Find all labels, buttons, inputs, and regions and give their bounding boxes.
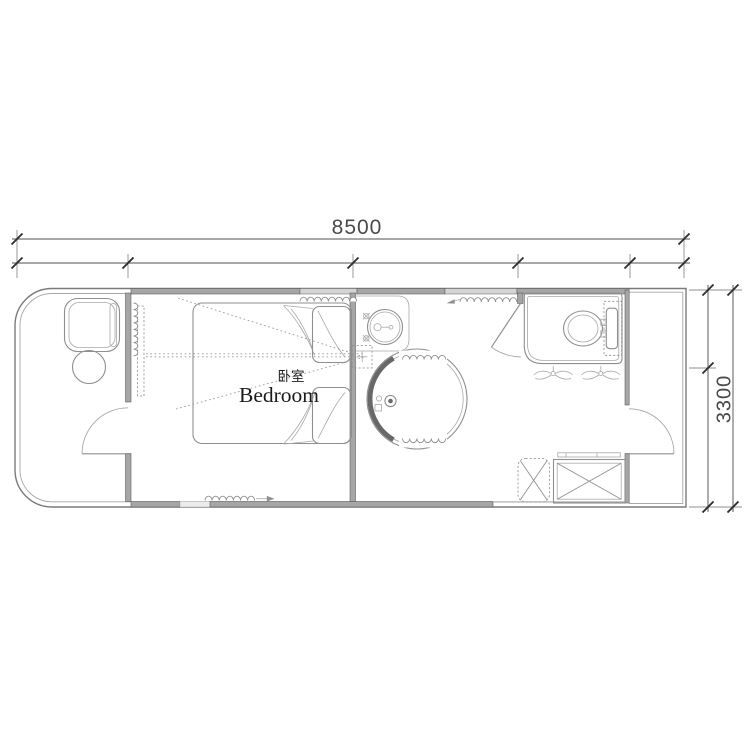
tap-handle-cold (363, 335, 370, 342)
overall-width-dimension-label: 8500 (332, 216, 383, 239)
window-bedroom-top (300, 289, 357, 295)
window-bath-top (445, 289, 517, 295)
dimension-top: 8500 (12, 216, 691, 278)
tap-handle-hot (363, 313, 370, 320)
opening-bottom (180, 502, 210, 508)
floor-plan-canvas: 8500 3300 (0, 0, 750, 750)
wall-toilet-stub (518, 293, 524, 304)
overall-depth-dimension-label: 3300 (714, 375, 736, 424)
room-label-zh: 卧室 (278, 368, 305, 384)
room-label-en: Bedroom (239, 383, 319, 407)
floor-plan-drawing: 8500 3300 (0, 0, 750, 750)
wall-entry (625, 290, 629, 405)
wall-front-partition (126, 293, 132, 402)
dimension-right: 3300 (689, 285, 742, 513)
